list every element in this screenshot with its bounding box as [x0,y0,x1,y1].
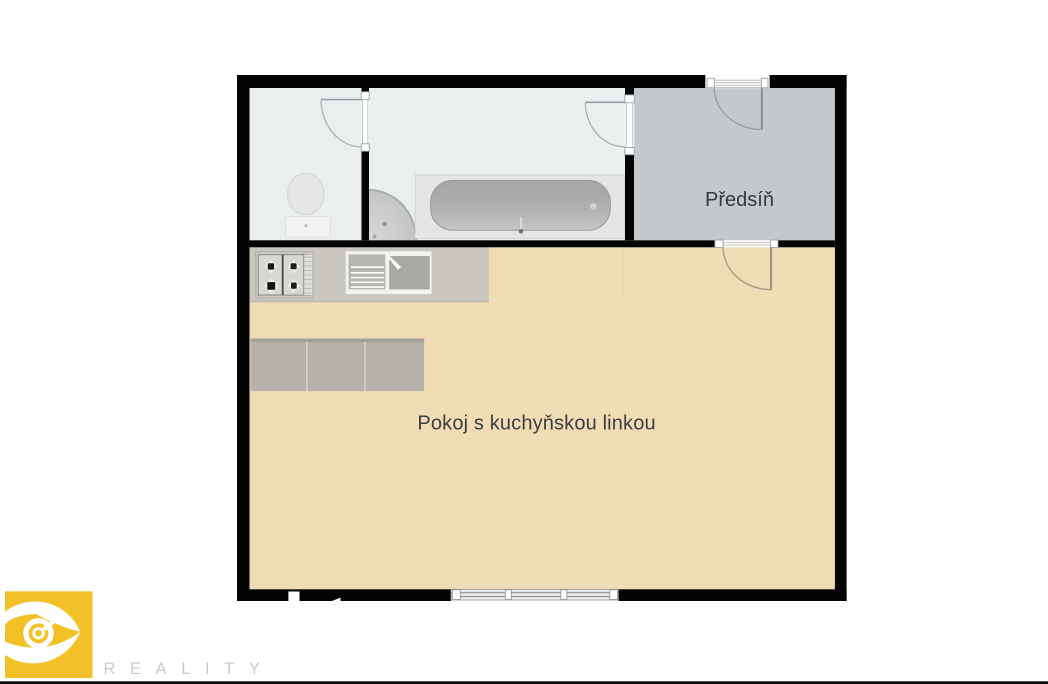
svg-text:REALITY: REALITY [104,660,275,678]
svg-text:Pokoj s kuchyňskou linkou: Pokoj s kuchyňskou linkou [417,413,655,435]
svg-text:Předsíň: Předsíň [705,189,774,211]
